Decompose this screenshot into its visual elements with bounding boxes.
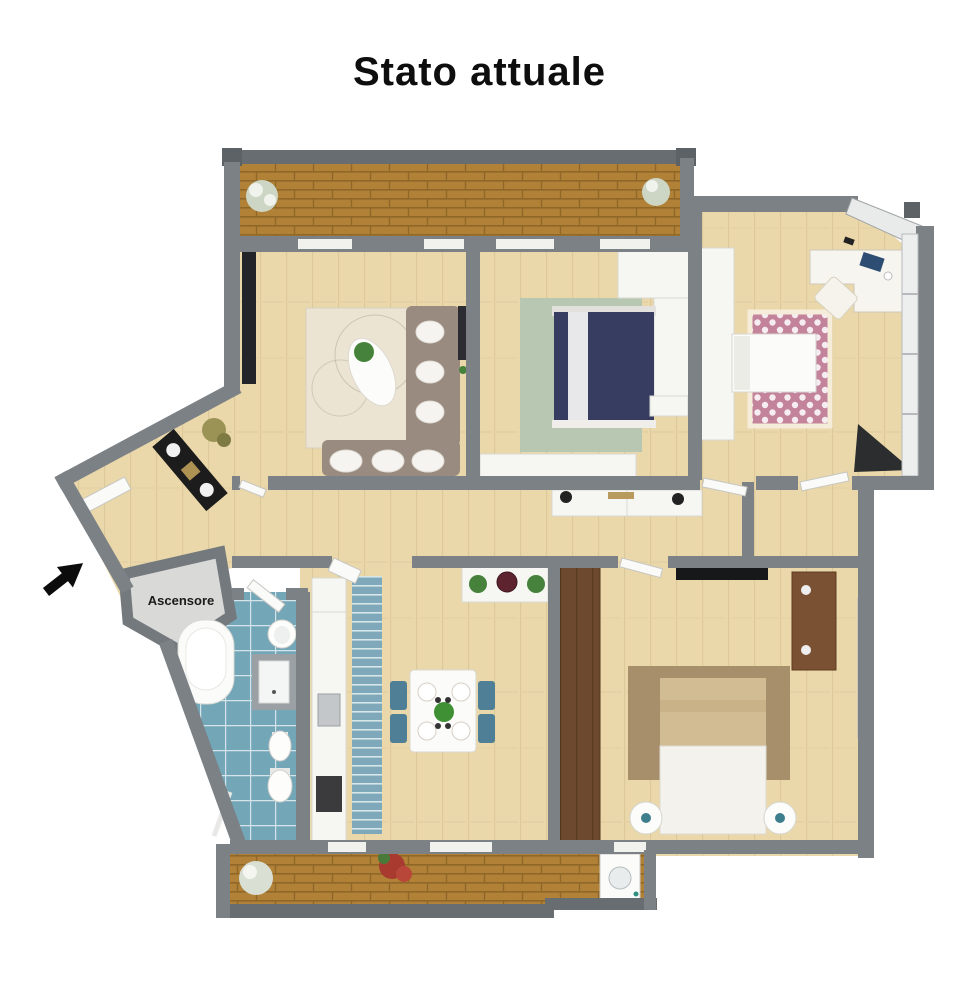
plant-icon	[527, 575, 545, 593]
wall-corridor-bottom	[668, 556, 870, 568]
wardrobe-white	[700, 248, 734, 440]
vase-icon	[672, 493, 684, 505]
wardrobe-white	[618, 246, 690, 298]
sofa-pillow	[416, 361, 444, 383]
gold-tray	[608, 492, 634, 499]
plant-white-icon	[249, 183, 263, 197]
dried-plant-icon	[217, 433, 231, 447]
washing-machine-door	[609, 867, 631, 889]
wall-right-lower	[858, 476, 874, 858]
wall-kitchen-bed3	[548, 564, 560, 852]
shelf-plant-icon	[459, 366, 467, 374]
centerpiece-plant-icon	[434, 702, 454, 722]
entrance-arrow-icon	[38, 553, 91, 602]
dresser-decor	[801, 645, 811, 655]
bathtub-basin	[186, 628, 226, 690]
elevator-label: Ascensore	[138, 593, 224, 608]
kitchen-sink	[318, 694, 340, 726]
wall-corridor-top	[232, 476, 240, 490]
cutlery-dot	[445, 697, 451, 703]
railing-top	[222, 150, 696, 164]
plate	[452, 683, 470, 701]
dresser	[480, 454, 636, 478]
railing-post	[904, 202, 920, 218]
sofa-pillow	[330, 450, 362, 472]
balcony-door	[298, 239, 352, 249]
balcony-door	[430, 842, 492, 852]
vase-icon	[560, 491, 572, 503]
decor-bowl	[497, 572, 517, 592]
wall-bottom	[230, 840, 874, 854]
tv-panel	[676, 566, 768, 580]
washing-machine-led	[634, 892, 639, 897]
floor-plan-page: Stato attuale	[0, 0, 959, 1000]
wall-left	[224, 162, 240, 392]
wall-corridor-top	[268, 476, 700, 490]
bed-footboard	[552, 420, 656, 428]
sofa-pillow	[372, 450, 404, 472]
bench	[650, 396, 688, 416]
cutlery-dot	[435, 697, 441, 703]
shower-drain	[272, 690, 276, 694]
wall-bed2-top	[690, 196, 858, 212]
wall-bed1-bed2	[688, 196, 702, 480]
wall-bathroom-top	[232, 588, 244, 600]
balcony-door	[424, 239, 464, 249]
dining-chair	[390, 714, 407, 743]
dining-chair	[478, 714, 495, 743]
railing-bottom	[216, 904, 554, 918]
runner-rug	[352, 576, 382, 834]
wall-corridor-top	[756, 476, 798, 490]
shower-tray	[259, 661, 289, 703]
plate	[418, 722, 436, 740]
cutlery-dot	[445, 723, 451, 729]
wardrobe-brown	[560, 564, 600, 852]
railing-bottom-left	[216, 844, 230, 918]
plate	[418, 683, 436, 701]
plant-white-icon	[264, 194, 276, 206]
plant-icon	[469, 575, 487, 593]
sofa-pillow	[412, 450, 444, 472]
tall-cabinet	[312, 578, 346, 612]
balcony-door	[614, 842, 646, 852]
railing-small-balcony-right	[644, 850, 656, 910]
plant-white-icon	[646, 180, 658, 192]
plant-white-icon	[239, 861, 273, 895]
floor-plan	[0, 0, 959, 1000]
desk-mouse	[884, 272, 892, 280]
dining-chair	[390, 681, 407, 710]
floor-balcony-top	[230, 158, 688, 242]
toilet	[268, 770, 292, 802]
balcony-door	[496, 239, 554, 249]
sofa-pillow	[416, 401, 444, 423]
bed-runner-stripe	[568, 312, 588, 422]
tv-panel	[242, 252, 256, 384]
sofa-pillow	[416, 321, 444, 343]
bed-pillow	[734, 336, 750, 390]
plant-white-icon	[243, 865, 257, 879]
wall-bath-kitchen	[296, 592, 310, 844]
bidet	[269, 731, 291, 761]
dresser-decor	[801, 585, 811, 595]
bed-duvet	[660, 746, 766, 834]
plant-icon	[354, 342, 374, 362]
balcony-door	[328, 842, 366, 852]
oven	[316, 776, 342, 812]
dresser-brown	[792, 572, 836, 670]
wall-right-upper	[916, 226, 934, 480]
bed-pillow-band	[660, 700, 766, 712]
cutlery-dot	[435, 723, 441, 729]
balcony-door	[600, 239, 650, 249]
dining-chair	[478, 681, 495, 710]
plate	[452, 722, 470, 740]
bed-tan-top	[660, 678, 766, 748]
railing-small-balcony	[545, 898, 657, 910]
nightstand-decor	[775, 813, 785, 823]
wall-corridor-bottom	[232, 556, 332, 568]
nightstand-decor	[641, 813, 651, 823]
wall-living-bed1	[466, 236, 480, 480]
plant-red-icon	[396, 866, 412, 882]
sink-basin	[274, 626, 290, 644]
wall-corridor-bottom	[412, 556, 618, 568]
closet-band	[654, 298, 690, 398]
